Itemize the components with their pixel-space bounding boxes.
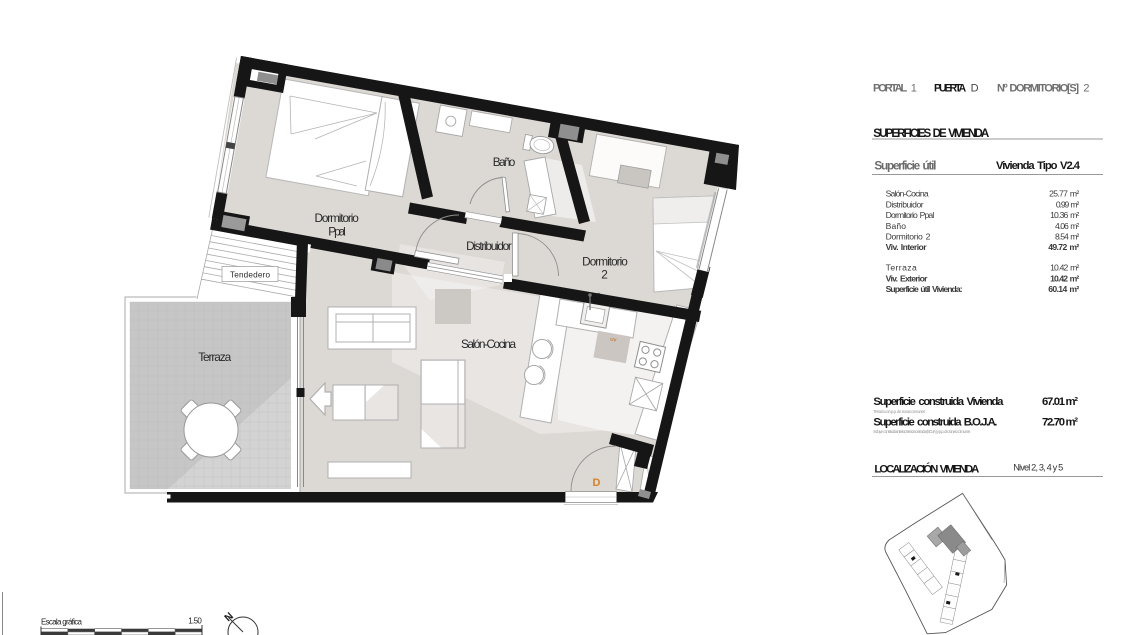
svg-text:Salón-Cocina: Salón-Cocina: [886, 189, 929, 199]
svg-text:Vivienda Tipo V2.4: Vivienda Tipo V2.4: [996, 160, 1081, 172]
svg-text:10.42 m²: 10.42 m²: [1050, 263, 1079, 273]
svg-text:D: D: [971, 83, 979, 95]
svg-text:Baño: Baño: [886, 221, 907, 231]
svg-text:Terraza: Terraza: [198, 350, 231, 364]
svg-text:1.50: 1.50: [188, 617, 202, 626]
svg-text:Superficie construida Vivienda: Superficie construida Vivienda: [873, 396, 1004, 408]
svg-text:SUPERFICIES DE VIVIENDA: SUPERFICIES DE VIVIENDA: [873, 127, 990, 140]
svg-text:Dormitorio: Dormitorio: [314, 211, 359, 225]
svg-text:D: D: [593, 477, 601, 489]
svg-text:72.70 m²: 72.70 m²: [1042, 417, 1078, 429]
svg-text:Baño: Baño: [493, 155, 516, 169]
svg-text:Ppal: Ppal: [328, 225, 346, 239]
svg-text:Terraza con p.p. de zonas comu: Terraza con p.p. de zonas comunes: [873, 409, 925, 414]
svg-text:Viv. Exterior: Viv. Exterior: [886, 273, 929, 283]
svg-text:60.14 m²: 60.14 m²: [1048, 284, 1079, 294]
svg-text:Viv. Interior: Viv. Interior: [886, 242, 928, 252]
svg-text:Terraza: Terraza: [886, 263, 917, 273]
svg-text:67.01 m²: 67.01 m²: [1042, 396, 1078, 408]
svg-text:PUERTA: PUERTA: [934, 83, 967, 95]
svg-text:2: 2: [601, 268, 608, 282]
svg-text:Incluye construida interior, t: Incluye construida interior, terraza cer…: [873, 429, 970, 434]
svg-text:Distribuidor: Distribuidor: [466, 239, 512, 253]
svg-text:49.72 m²: 49.72 m²: [1048, 242, 1079, 252]
svg-text:Escala gráfica: Escala gráfica: [41, 618, 83, 627]
svg-text:Superficie útil: Superficie útil: [874, 159, 936, 173]
svg-text:25.77 m²: 25.77 m²: [1049, 189, 1079, 199]
svg-text:Superficie útil Vivienda:: Superficie útil Vivienda:: [886, 284, 963, 294]
svg-text:Nº DORMITORIO[S]: Nº DORMITORIO[S]: [997, 83, 1079, 95]
svg-text:Dormitorio 2: Dormitorio 2: [886, 232, 931, 242]
svg-text:LOCALIZACIÓN VIVIENDA: LOCALIZACIÓN VIVIENDA: [874, 463, 979, 476]
svg-text:Distribuidor: Distribuidor: [886, 199, 924, 209]
svg-text:2: 2: [1083, 83, 1089, 95]
svg-text:Dormitorio: Dormitorio: [582, 255, 628, 269]
svg-text:1: 1: [911, 83, 917, 95]
svg-text:4.06 m²: 4.06 m²: [1055, 221, 1079, 231]
svg-text:Tendedero: Tendedero: [230, 271, 270, 280]
svg-text:PORTAL: PORTAL: [873, 83, 907, 95]
svg-text:8.54 m²: 8.54 m²: [1055, 232, 1079, 242]
svg-text:10.42 m²: 10.42 m²: [1050, 273, 1079, 283]
svg-text:Salón-Cocina: Salón-Cocina: [461, 337, 516, 351]
svg-text:Nivel 2, 3, 4 y 5: Nivel 2, 3, 4 y 5: [1013, 463, 1063, 473]
svg-text:Superficie construida B.O.J.A.: Superficie construida B.O.J.A.: [873, 417, 997, 429]
svg-text:Dormitorio Ppal: Dormitorio Ppal: [886, 210, 935, 220]
svg-text:N: N: [222, 610, 236, 624]
svg-text:0.99 m²: 0.99 m²: [1056, 199, 1080, 209]
svg-text:10.36 m²: 10.36 m²: [1050, 210, 1079, 220]
